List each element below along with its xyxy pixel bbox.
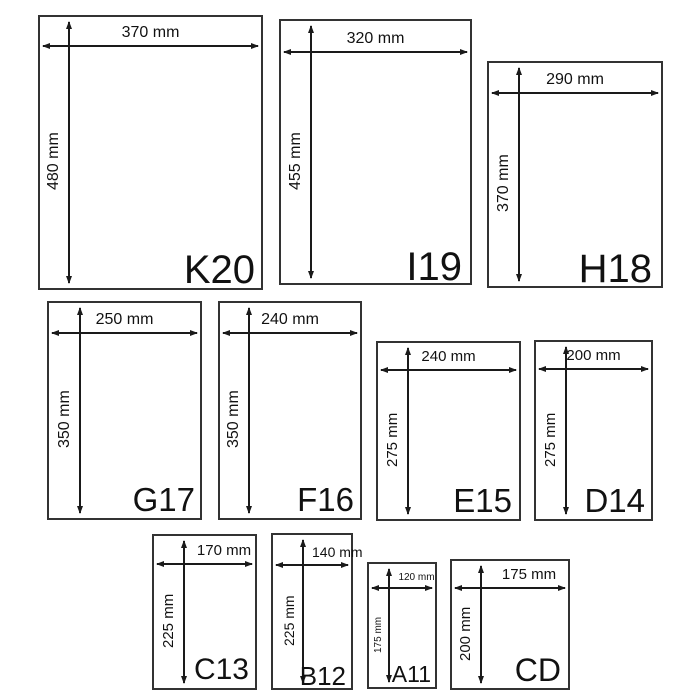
height-arrow: [183, 541, 185, 683]
size-code: H18: [579, 249, 652, 289]
height-arrow: [480, 566, 482, 683]
envelope-box-cd: 175 mm 200 mm CD: [450, 559, 570, 690]
height-dimension-label: 225 mm: [160, 545, 178, 697]
size-code: K20: [184, 250, 255, 290]
height-arrow: [407, 348, 409, 514]
envelope-box-c13: 170 mm 225 mm C13: [152, 534, 257, 690]
height-arrow: [79, 308, 81, 513]
height-arrow: [518, 68, 520, 281]
height-arrow: [388, 569, 390, 682]
width-arrow: [492, 92, 658, 94]
envelope-box-f16: 240 mm 350 mm F16: [218, 301, 362, 520]
height-dimension-label: 480 mm: [44, 26, 63, 297]
size-code: C13: [194, 655, 249, 685]
height-arrow: [565, 347, 567, 514]
envelope-box-i19: 320 mm 455 mm I19: [279, 19, 472, 285]
height-dimension-label: 455 mm: [286, 30, 305, 292]
height-dimension-label: 350 mm: [224, 312, 243, 527]
envelope-size-diagram: 370 mm 480 mm K20 320 mm 455 mm I19 290 …: [0, 0, 700, 700]
envelope-box-e15: 240 mm 275 mm E15: [376, 341, 521, 521]
envelope-box-a11: 120 mm 175 mm A11: [367, 562, 437, 689]
size-code: D14: [584, 484, 645, 517]
height-arrow: [310, 26, 312, 278]
size-code: I19: [406, 247, 462, 287]
height-dimension-label: 275 mm: [384, 352, 402, 528]
size-code: F16: [297, 483, 354, 516]
height-arrow: [68, 22, 70, 283]
size-code: G17: [133, 483, 195, 516]
height-dimension-label: 175 mm: [373, 573, 385, 696]
size-code: CD: [515, 654, 561, 686]
height-dimension-label: 275 mm: [542, 351, 560, 528]
envelope-box-k20: 370 mm 480 mm K20: [38, 15, 263, 290]
height-dimension-label: 350 mm: [55, 312, 74, 527]
envelope-box-b12: 140 mm 225 mm B12: [271, 533, 353, 690]
width-dimension-label: 370 mm: [40, 23, 261, 42]
size-code: E15: [453, 484, 512, 517]
width-dimension-label: 290 mm: [489, 70, 661, 89]
height-arrow: [248, 308, 250, 513]
width-arrow: [43, 45, 258, 47]
height-dimension-label: 225 mm: [281, 544, 298, 697]
envelope-box-h18: 290 mm 370 mm H18: [487, 61, 663, 288]
height-dimension-label: 370 mm: [494, 72, 513, 295]
height-dimension-label: 200 mm: [457, 570, 475, 697]
size-code: A11: [392, 663, 431, 686]
size-code: B12: [300, 663, 346, 689]
envelope-box-d14: 200 mm 275 mm D14: [534, 340, 653, 521]
envelope-box-g17: 250 mm 350 mm G17: [47, 301, 202, 520]
